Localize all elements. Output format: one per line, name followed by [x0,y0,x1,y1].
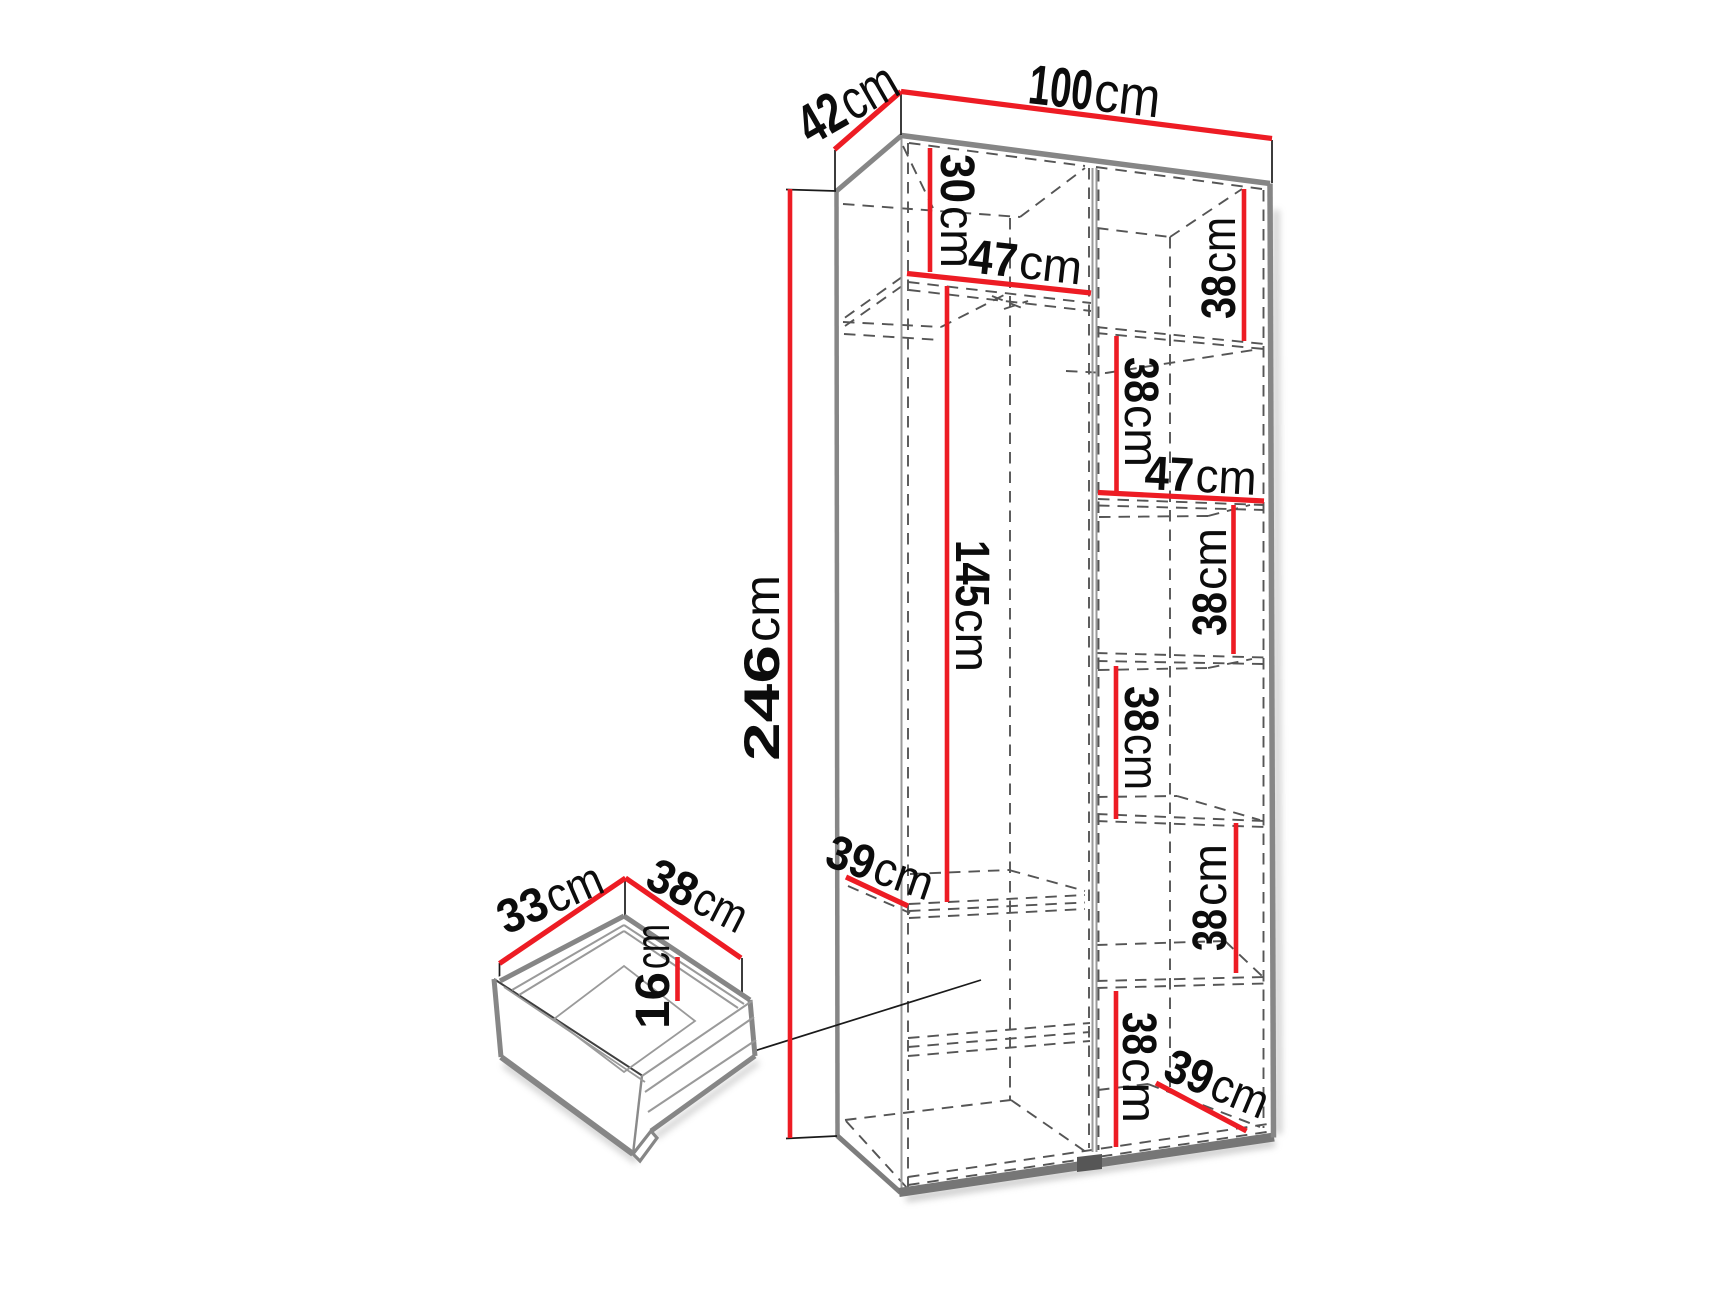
svg-text:38: 38 [1184,592,1237,636]
svg-text:38: 38 [1193,275,1246,319]
svg-text:246: 246 [734,645,790,761]
svg-text:cm: cm [1194,450,1258,506]
svg-text:47: 47 [1143,447,1195,502]
svg-text:38: 38 [1114,357,1167,403]
svg-text:cm: cm [1016,236,1084,296]
svg-text:38: 38 [1184,909,1237,951]
svg-text:145: 145 [945,540,998,607]
svg-text:38: 38 [1112,1012,1165,1055]
svg-text:cm: cm [1091,60,1164,130]
svg-text:100: 100 [1026,52,1097,122]
svg-text:cm: cm [1114,734,1167,790]
svg-text:16: 16 [627,972,680,1029]
svg-text:cm: cm [1112,1058,1165,1123]
svg-text:cm: cm [734,575,790,642]
svg-text:cm: cm [627,924,680,969]
svg-text:38: 38 [1114,686,1167,732]
svg-text:cm: cm [1184,844,1237,906]
svg-text:cm: cm [1184,528,1237,590]
svg-text:30: 30 [930,154,983,203]
svg-text:47: 47 [966,230,1021,288]
svg-text:cm: cm [1193,217,1246,273]
svg-text:cm: cm [945,609,998,672]
